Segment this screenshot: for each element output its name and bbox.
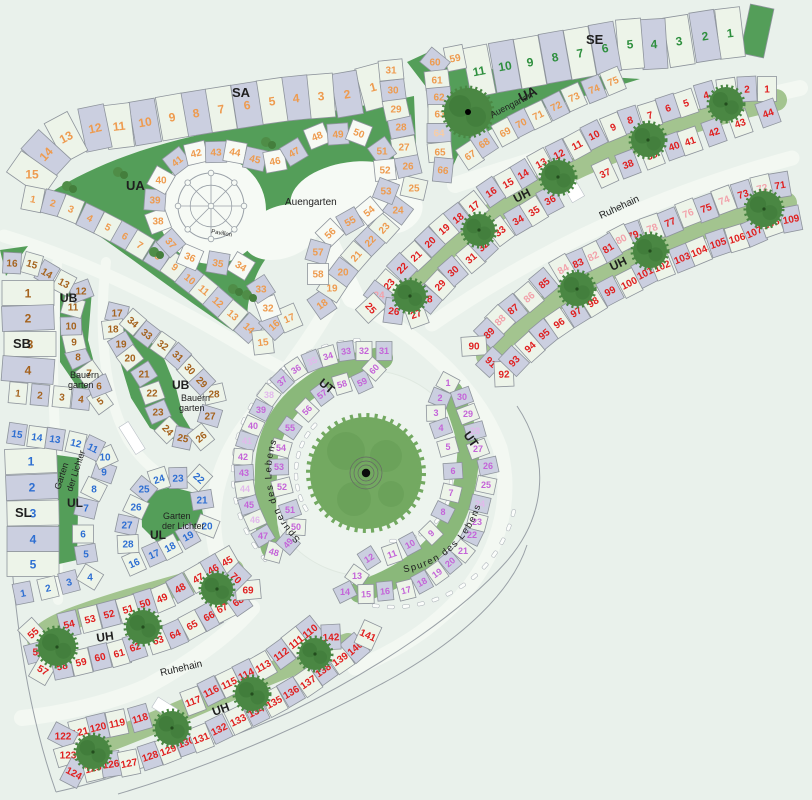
plot-number: 2 — [744, 84, 751, 95]
plot-number: 64 — [433, 129, 445, 140]
plot-number: 53 — [380, 187, 392, 198]
plot-number: 1 — [28, 454, 35, 468]
plot-number: 40 — [155, 176, 167, 187]
plot-number: 69 — [242, 586, 254, 597]
tree — [541, 160, 575, 194]
plot-number: 1 — [764, 85, 770, 96]
tree — [746, 191, 782, 227]
plot-number: 44 — [240, 484, 250, 494]
plot-number: 15 — [361, 589, 371, 599]
plot-UT-R-15[interactable]: 15 — [358, 584, 374, 603]
plot-SB-1[interactable]: 1 — [2, 281, 54, 306]
plot-number: 92 — [498, 369, 510, 380]
plot-number: 10 — [65, 322, 77, 333]
plot-number: 1 — [25, 286, 32, 300]
plot-number: 15 — [257, 337, 270, 349]
plot-UA-sq-49[interactable]: 49 — [327, 123, 349, 145]
plot-number: 47 — [258, 531, 268, 541]
label-ul: UL — [67, 496, 83, 510]
plot-UA-sq-58[interactable]: 58 — [308, 264, 329, 285]
plot-UL2-27[interactable]: 27 — [115, 514, 139, 536]
plot-number: 4 — [650, 37, 658, 51]
plot-number: 19 — [326, 284, 338, 295]
plot-number: 40 — [248, 421, 258, 431]
plot-SB-4[interactable]: 4 — [1, 356, 55, 385]
plot-SL-1[interactable]: 1 — [5, 448, 58, 475]
plot-UL1-15[interactable]: 15 — [7, 422, 28, 445]
plot-number: 39 — [256, 405, 266, 415]
tree — [394, 280, 426, 312]
plot-UB1-16[interactable]: 16 — [2, 252, 21, 274]
plot-number: 11 — [112, 119, 127, 134]
central-tree — [310, 417, 422, 529]
tree — [126, 610, 160, 644]
plot-number: 21 — [196, 496, 208, 507]
plot-SL-5[interactable]: 5 — [7, 552, 59, 577]
tree — [76, 735, 110, 769]
edge-stone — [390, 539, 397, 543]
plot-number: 33 — [255, 285, 267, 296]
plot-number: 16 — [6, 258, 18, 270]
plot-number: 43 — [210, 147, 222, 158]
edge-stone — [372, 604, 379, 609]
label-bauern: Bauern — [181, 393, 210, 403]
plot-number: 25 — [481, 480, 491, 490]
plot-UL1-14[interactable]: 14 — [27, 425, 48, 448]
plot-number: 19 — [115, 340, 127, 351]
plot-number: 28 — [395, 123, 407, 134]
plot-number: 13 — [49, 434, 62, 447]
plot-UL2-21[interactable]: 21 — [190, 489, 214, 510]
plot-UT-R-16[interactable]: 16 — [376, 581, 394, 601]
plot-UT-L-43[interactable]: 43 — [234, 464, 254, 481]
label-sl: SL — [15, 505, 32, 520]
plot-number: 10 — [137, 114, 153, 130]
plot-number: 6 — [450, 466, 455, 476]
plot-UL2-23[interactable]: 23 — [169, 467, 188, 488]
plot-number: 2 — [29, 480, 36, 494]
plot-number: 20 — [337, 268, 349, 279]
label-der-lichter: der Lichter — [162, 521, 205, 531]
cemetery-map-svg: 1234567891011121314151234567891011123456… — [0, 0, 812, 800]
plot-number: 15 — [25, 167, 39, 181]
cemetery-map: 1234567891011121314151234567891011123456… — [0, 0, 812, 800]
plot-number: 10 — [99, 453, 111, 464]
plot-number: 32 — [359, 346, 369, 356]
plot-number: 26 — [483, 461, 493, 471]
plot-number: 28 — [208, 390, 220, 401]
plot-number: 18 — [107, 325, 119, 336]
plot-UB1-2[interactable]: 2 — [30, 384, 50, 407]
edge-stone — [294, 462, 298, 469]
plot-number: 4 — [30, 532, 37, 546]
plot-UT-L-33[interactable]: 33 — [337, 340, 355, 361]
plot-number: 29 — [390, 105, 402, 116]
plot-number: 53 — [274, 462, 284, 472]
plot-UL1-13[interactable]: 13 — [45, 427, 66, 450]
tree — [631, 123, 665, 157]
plot-number: 15 — [11, 429, 24, 442]
plot-UH2-90[interactable]: 90 — [461, 336, 487, 357]
edge-stone — [294, 473, 298, 480]
plot-number: 32 — [262, 304, 274, 315]
plot-number: 51 — [376, 147, 388, 158]
label-uh: UH — [95, 629, 114, 645]
edge-stone — [402, 604, 409, 608]
plot-number: 49 — [332, 129, 344, 141]
label-ua: UA — [126, 178, 145, 193]
plot-number: 9 — [101, 468, 107, 479]
label-garten: garten — [68, 380, 94, 390]
plot-UA-right-66[interactable]: 66 — [432, 157, 453, 183]
tree — [633, 234, 667, 268]
plot-UA-band-30[interactable]: 30 — [380, 79, 406, 102]
plot-number: 52 — [379, 166, 391, 177]
plot-SB-2[interactable]: 2 — [2, 305, 55, 332]
plot-number: 57 — [312, 248, 324, 259]
label-bauern: Bauern — [70, 370, 99, 380]
plot-UT-L-31[interactable]: 31 — [376, 342, 392, 361]
plot-number: 13 — [352, 571, 362, 581]
plot-number: 5 — [445, 442, 450, 452]
plot-number: 26 — [388, 306, 401, 318]
tree — [155, 711, 189, 745]
plot-UL2-28[interactable]: 28 — [117, 534, 139, 553]
plot-number: 45 — [244, 500, 254, 510]
plot-number: 28 — [122, 540, 134, 551]
plot-number: 38 — [264, 390, 274, 400]
plot-UL1-1[interactable]: 1 — [12, 581, 34, 605]
plot-UT-R-25[interactable]: 25 — [475, 475, 497, 495]
plot-number: 22 — [146, 389, 158, 400]
plot-number: 14 — [31, 432, 44, 444]
tree — [463, 214, 495, 246]
plot-number: 4 — [438, 423, 443, 433]
plot-number: 30 — [387, 86, 399, 97]
label-se: SE — [586, 32, 604, 47]
plot-number: 51 — [285, 505, 295, 515]
plot-number: 8 — [440, 507, 445, 517]
label-ub: UB — [60, 291, 78, 305]
plot-number: 1 — [445, 378, 450, 388]
plot-UA-right-59[interactable]: 59 — [443, 44, 466, 71]
plot-number: 31 — [385, 66, 397, 77]
plot-number: 46 — [250, 515, 260, 525]
plot-number: 55 — [285, 423, 295, 433]
label-auengarten: Auengarten — [285, 197, 337, 208]
tree — [560, 272, 594, 306]
plot-UA-sq-35[interactable]: 35 — [206, 251, 230, 275]
plot-number: 7 — [448, 488, 453, 498]
edge-stone — [387, 605, 394, 609]
plot-number: 30 — [457, 392, 467, 402]
plot-number: 66 — [437, 165, 450, 177]
plot-UL1-6[interactable]: 6 — [73, 525, 94, 543]
plot-number: 24 — [392, 206, 404, 217]
label-sa: SA — [232, 85, 251, 100]
tree — [201, 573, 233, 605]
plot-number: 27 — [121, 521, 133, 532]
plot-UA-sq-42[interactable]: 42 — [183, 140, 208, 165]
plot-UB1-10[interactable]: 10 — [60, 317, 81, 336]
plot-number: 20 — [124, 354, 136, 365]
plot-number: 4 — [87, 573, 93, 584]
plot-number: 27 — [204, 412, 216, 423]
tree — [38, 628, 76, 666]
plot-UT-L-42[interactable]: 42 — [233, 448, 253, 466]
plot-SL-2[interactable]: 2 — [6, 474, 59, 501]
plot-number: 6 — [96, 382, 102, 393]
plot-number: 33 — [340, 346, 351, 357]
plot-number: 8 — [75, 353, 81, 364]
plot-UH1-1[interactable]: 1 — [758, 77, 777, 102]
label-sb: SB — [13, 336, 31, 351]
plot-number: 25 — [138, 485, 150, 496]
tree — [444, 88, 492, 136]
plot-UT-R-6[interactable]: 6 — [443, 462, 463, 479]
plot-number: 41 — [242, 436, 252, 446]
tree — [299, 638, 331, 670]
plot-number: 21 — [138, 370, 150, 381]
tree — [709, 87, 743, 121]
plot-number: 61 — [431, 76, 443, 87]
plot-number: 7 — [83, 504, 89, 515]
plot-number: 29 — [463, 409, 473, 419]
plot-number: 58 — [312, 270, 324, 281]
plot-number: 62 — [433, 93, 445, 104]
plot-number: 8 — [91, 485, 97, 496]
plot-number: 90 — [468, 342, 480, 353]
plot-number: 9 — [71, 338, 77, 349]
plot-number: 52 — [277, 482, 287, 492]
plot-number: 25 — [408, 184, 420, 195]
plot-number: 71 — [774, 180, 787, 193]
plot-number: 2 — [437, 393, 442, 403]
plot-number: 122 — [55, 732, 72, 743]
plot-UL1-5[interactable]: 5 — [74, 543, 98, 564]
plot-number: 42 — [238, 452, 248, 462]
plot-number: 17 — [111, 309, 123, 320]
label-ub: UB — [172, 378, 190, 392]
plot-number: 14 — [340, 587, 350, 597]
band-SL: 12345 — [5, 448, 60, 577]
plot-number: 4 — [25, 363, 32, 377]
plot-number: 3 — [433, 408, 438, 418]
plot-number: 5 — [83, 550, 89, 561]
plot-number: 10 — [497, 58, 513, 74]
band-SB: 1234 — [1, 281, 56, 385]
plot-number: 6 — [80, 530, 86, 541]
plot-UT-L-32[interactable]: 32 — [356, 342, 372, 361]
plot-number: 23 — [152, 408, 164, 419]
plot-number: 43 — [239, 468, 249, 478]
plot-number: 2 — [25, 311, 32, 325]
plot-number: 23 — [172, 473, 184, 484]
plot-number: 31 — [379, 346, 389, 356]
plot-number: 5 — [30, 557, 37, 571]
label-garten: garten — [179, 403, 205, 413]
plot-number: 38 — [152, 217, 164, 228]
plot-number: 27 — [398, 143, 410, 154]
plot-number: 26 — [130, 503, 142, 514]
plot-number: 26 — [402, 162, 414, 173]
plot-UB1-1[interactable]: 1 — [8, 382, 28, 405]
plot-number: 39 — [149, 196, 161, 207]
plot-number: 16 — [380, 586, 391, 597]
plot-UA-band-31[interactable]: 31 — [378, 59, 404, 81]
plot-number: 60 — [429, 58, 441, 69]
label-garten: Garten — [163, 511, 191, 521]
tree — [235, 677, 269, 711]
plot-UA-sq-52[interactable]: 52 — [374, 159, 397, 182]
plot-SL-4[interactable]: 4 — [7, 527, 59, 552]
plot-number: 21 — [458, 546, 468, 556]
